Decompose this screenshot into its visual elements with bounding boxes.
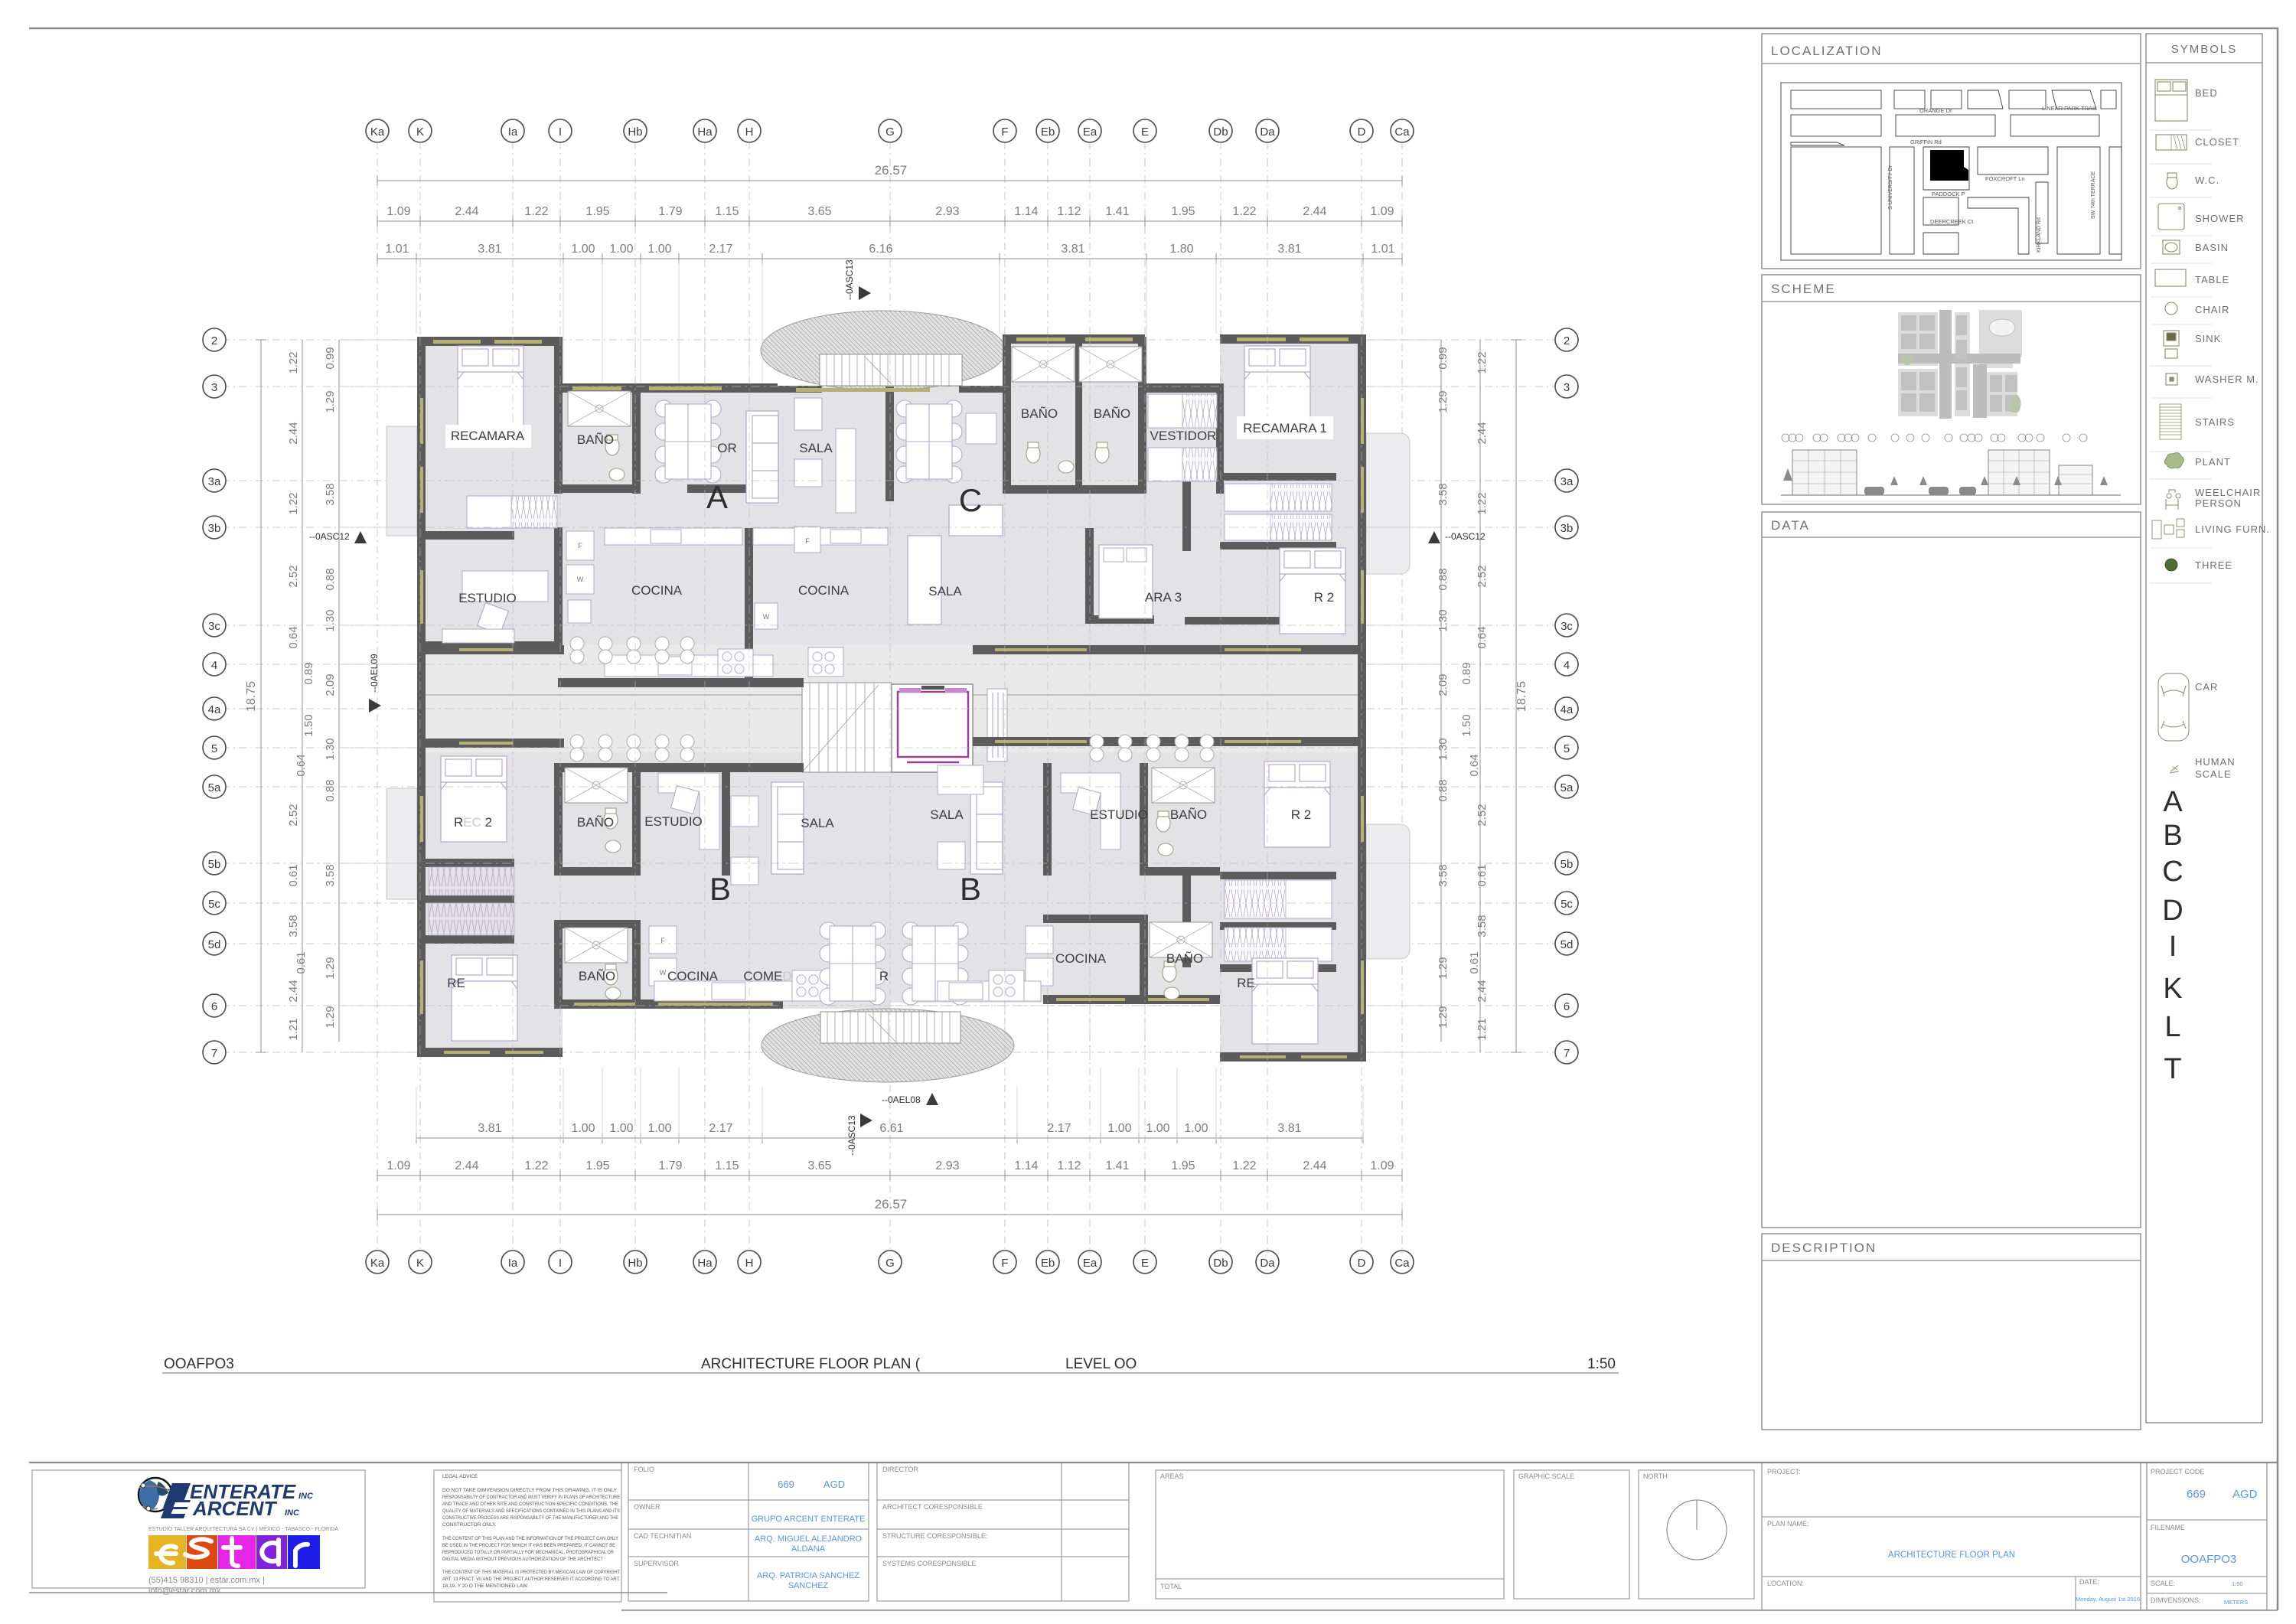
svg-text:3.81: 3.81 [1061, 243, 1084, 256]
svg-text:D: D [2162, 895, 2183, 927]
svg-text:5c: 5c [208, 898, 220, 911]
svg-text:2.44: 2.44 [1303, 205, 1326, 218]
svg-text:1.00: 1.00 [1146, 1122, 1169, 1135]
svg-text:0.64: 0.64 [1468, 754, 1481, 776]
svg-text:BAÑO: BAÑO [577, 432, 614, 447]
svg-text:3a: 3a [208, 475, 221, 488]
svg-text:W.C.: W.C. [2195, 174, 2219, 186]
svg-text:1.22: 1.22 [1476, 351, 1489, 373]
svg-text:KIRKLAND Rd: KIRKLAND Rd [2037, 217, 2042, 253]
svg-text:ESTUDIO: ESTUDIO [458, 591, 517, 605]
svg-text:1.09: 1.09 [386, 205, 410, 218]
svg-text:TOTAL: TOTAL [1160, 1583, 1182, 1590]
svg-text:AREAS: AREAS [1160, 1472, 1184, 1480]
svg-text:1.29: 1.29 [324, 1006, 337, 1028]
svg-text:Db: Db [1213, 1257, 1228, 1270]
svg-text:RECAMARA 1: RECAMARA 1 [1243, 421, 1327, 435]
svg-text:BAÑO: BAÑO [1166, 951, 1203, 966]
svg-text:1.00: 1.00 [647, 243, 671, 256]
svg-text:I: I [559, 1257, 562, 1270]
svg-text:1.15: 1.15 [715, 1159, 739, 1172]
svg-text:3.65: 3.65 [807, 205, 831, 218]
svg-text:ARA 3: ARA 3 [1145, 590, 1182, 605]
svg-text:0.99: 0.99 [1437, 347, 1450, 369]
svg-text:THE CONTENT OF THIS PLAN AND T: THE CONTENT OF THIS PLAN AND THE INFORMA… [442, 1536, 619, 1541]
svg-text:0.89: 0.89 [1460, 662, 1473, 684]
svg-text:Da: Da [1260, 1257, 1275, 1270]
svg-text:3.81: 3.81 [1277, 1122, 1301, 1135]
svg-text:LOCATION:: LOCATION: [1767, 1580, 1804, 1587]
svg-text:1.29: 1.29 [1437, 957, 1450, 979]
svg-text:DIRECTOR: DIRECTOR [882, 1466, 918, 1473]
svg-text:CHAIR: CHAIR [2195, 304, 2229, 315]
svg-text:COCINA: COCINA [631, 583, 683, 598]
svg-text:4: 4 [1564, 659, 1570, 672]
svg-text:2.44: 2.44 [287, 422, 300, 444]
svg-text:CONSTRUCTOR ONLY.: CONSTRUCTOR ONLY. [442, 1522, 497, 1528]
svg-text:DATE:: DATE: [2079, 1578, 2099, 1586]
svg-text:1.30: 1.30 [324, 609, 337, 631]
svg-text:B: B [709, 871, 731, 907]
svg-text:SYSTEMS CORESPONSIBLE: SYSTEMS CORESPONSIBLE [882, 1560, 977, 1567]
svg-text:0.61: 0.61 [287, 864, 300, 886]
svg-text:0.88: 0.88 [1437, 779, 1450, 801]
svg-text:B: B [960, 871, 981, 907]
svg-text:1.21: 1.21 [1476, 1018, 1489, 1040]
svg-text:3a: 3a [1561, 475, 1574, 488]
svg-text:TABLE: TABLE [2195, 274, 2229, 285]
svg-text:1:50: 1:50 [2232, 1580, 2243, 1587]
svg-text:SALA: SALA [928, 584, 962, 598]
svg-text:REPRODUCED TOTALLY OR PARTIALL: REPRODUCED TOTALLY OR PARTIALLY FOR MECH… [442, 1550, 614, 1555]
svg-text:6.61: 6.61 [879, 1122, 903, 1135]
svg-text:W: W [763, 613, 770, 621]
svg-text:2.44: 2.44 [455, 1159, 478, 1172]
svg-text:E: E [1141, 126, 1149, 139]
svg-text:1.50: 1.50 [1460, 714, 1473, 736]
svg-text:PADDOCK P: PADDOCK P [1932, 191, 1965, 197]
svg-text:WEELCHAIR: WEELCHAIR [2195, 487, 2261, 498]
svg-text:GRAPHIC SCALE: GRAPHIC SCALE [1518, 1472, 1574, 1480]
svg-text:SALA: SALA [799, 441, 833, 455]
svg-text:H: H [745, 1257, 754, 1270]
svg-text:Eb: Eb [1041, 126, 1055, 139]
svg-text:I: I [559, 126, 562, 139]
svg-text:D: D [1358, 126, 1366, 139]
svg-text:Ia: Ia [508, 1257, 518, 1270]
svg-text:0.61: 0.61 [1468, 951, 1481, 973]
svg-text:BAÑO: BAÑO [1170, 807, 1207, 822]
svg-text:0.64: 0.64 [295, 754, 308, 776]
svg-text:PLANT: PLANT [2195, 456, 2231, 468]
svg-text:INC: INC [298, 1492, 314, 1501]
svg-text:BAÑO: BAÑO [579, 969, 615, 983]
svg-text:0.88: 0.88 [1437, 568, 1450, 590]
svg-text:REC 2: REC 2 [454, 815, 492, 830]
svg-text:5b: 5b [1561, 858, 1574, 871]
svg-text:OWNER: OWNER [634, 1503, 660, 1511]
svg-text:Ca: Ca [1394, 1257, 1410, 1270]
svg-text:5d: 5d [1561, 938, 1574, 951]
svg-text:6: 6 [1564, 1000, 1570, 1013]
svg-text:FOXCROFT Ln: FOXCROFT Ln [1985, 175, 2025, 182]
svg-text:Ea: Ea [1083, 126, 1097, 139]
svg-text:3b: 3b [208, 522, 221, 535]
svg-text:(55)415 98310 | estar.c: (55)415 98310 | estar.com.mx | [148, 1576, 265, 1585]
svg-text:1.30: 1.30 [1437, 738, 1450, 760]
svg-text:SHOWER: SHOWER [2195, 213, 2245, 224]
svg-text:A: A [2163, 786, 2183, 818]
svg-text:OOAFPO3: OOAFPO3 [164, 1356, 234, 1372]
svg-text:1.00: 1.00 [647, 1122, 671, 1135]
svg-text:1.95: 1.95 [585, 1159, 609, 1172]
svg-text:RE: RE [1237, 976, 1255, 990]
svg-text:DATA: DATA [1771, 518, 1810, 533]
svg-text:1.00: 1.00 [571, 1122, 595, 1135]
svg-text:2.44: 2.44 [1476, 422, 1489, 444]
svg-text:SUPERVISOR: SUPERVISOR [634, 1560, 679, 1567]
svg-text:2: 2 [211, 334, 217, 347]
svg-text:NORTH: NORTH [1643, 1472, 1668, 1480]
svg-text:LEGAL ADVICE: LEGAL ADVICE [442, 1474, 478, 1479]
svg-text:18.75: 18.75 [245, 681, 258, 712]
svg-text:L: L [2164, 1011, 2180, 1043]
svg-text:WASHER M.: WASHER M. [2195, 373, 2259, 385]
svg-text:1.22: 1.22 [1232, 205, 1256, 218]
svg-text:2.09: 2.09 [1437, 673, 1450, 696]
svg-text:1.30: 1.30 [324, 738, 337, 760]
svg-text:LINEAR PARK TRAIL: LINEAR PARK TRAIL [2042, 105, 2097, 112]
svg-text:1:50: 1:50 [1587, 1356, 1616, 1372]
svg-text:DEERCREEK Ct: DEERCREEK Ct [1930, 218, 1974, 225]
svg-text:3.81: 3.81 [1277, 243, 1301, 256]
svg-text:ARCHITECT CORESPONSIBLE: ARCHITECT CORESPONSIBLE [882, 1503, 983, 1511]
svg-text:F: F [578, 542, 582, 549]
svg-text:A: A [706, 479, 728, 515]
svg-text:3: 3 [1564, 381, 1570, 394]
svg-text:METERS: METERS [2224, 1599, 2248, 1606]
svg-text:DESCRIPTION: DESCRIPTION [1771, 1241, 1877, 1255]
svg-text:5: 5 [1564, 742, 1570, 755]
svg-text:HUMAN: HUMAN [2195, 756, 2236, 768]
svg-text:--0ASC13: --0ASC13 [846, 1115, 857, 1156]
svg-text:1.09: 1.09 [386, 1159, 410, 1172]
svg-text:1.14: 1.14 [1014, 1159, 1038, 1172]
svg-text:Ia: Ia [508, 126, 518, 139]
svg-text:0.61: 0.61 [295, 951, 308, 973]
svg-text:ART. 13 FRACT. VII AND THE PRO: ART. 13 FRACT. VII AND THE PROJECT AUTHO… [442, 1577, 620, 1582]
svg-text:SCALE:: SCALE: [2151, 1580, 2175, 1587]
svg-text:ESTUDIO: ESTUDIO [644, 814, 703, 829]
svg-text:2.44: 2.44 [1303, 1159, 1326, 1172]
svg-text:1.22: 1.22 [287, 492, 300, 514]
svg-text:1.22: 1.22 [1476, 492, 1489, 514]
svg-text:1.95: 1.95 [585, 205, 609, 218]
svg-text:2.93: 2.93 [935, 1159, 959, 1172]
svg-text:K: K [416, 1257, 424, 1270]
svg-text:1.14: 1.14 [1014, 205, 1038, 218]
svg-text:G: G [885, 1257, 895, 1270]
svg-text:ARQ. PATRICIA SANCHEZ: ARQ. PATRICIA SANCHEZ [757, 1571, 859, 1580]
svg-text:3.58: 3.58 [1437, 864, 1450, 886]
svg-text:26.57: 26.57 [875, 163, 908, 178]
svg-text:R 2: R 2 [1314, 590, 1334, 605]
svg-text:0.99: 0.99 [324, 347, 337, 369]
svg-text:BE USED IN THE PROJECT FOR WHI: BE USED IN THE PROJECT FOR WHICH IT HAS … [442, 1543, 616, 1548]
svg-text:1.12: 1.12 [1057, 205, 1081, 218]
svg-text:info@estar.com.mx: info@estar.com.mx [148, 1586, 221, 1596]
svg-text:1.95: 1.95 [1171, 1159, 1195, 1172]
svg-text:2.44: 2.44 [1476, 980, 1489, 1002]
svg-text:3c: 3c [1561, 620, 1573, 633]
svg-text:1.22: 1.22 [1232, 1159, 1256, 1172]
svg-text:SANCHEZ: SANCHEZ [788, 1581, 829, 1590]
svg-text:1.41: 1.41 [1105, 1159, 1129, 1172]
svg-text:LOCALIZATION: LOCALIZATION [1771, 44, 1883, 58]
svg-text:ESTUDIO: ESTUDIO [1090, 807, 1148, 822]
svg-text:1.00: 1.00 [1107, 1122, 1131, 1135]
svg-text:1.22: 1.22 [524, 205, 548, 218]
svg-text:1.79: 1.79 [658, 1159, 682, 1172]
svg-text:1.95: 1.95 [1171, 205, 1195, 218]
svg-text:R 2: R 2 [1291, 807, 1311, 822]
svg-text:OR: OR [717, 441, 737, 455]
svg-text:5b: 5b [208, 858, 221, 871]
svg-text:INC: INC [285, 1508, 300, 1518]
svg-text:3b: 3b [1561, 522, 1574, 535]
svg-text:3.81: 3.81 [478, 243, 501, 256]
svg-text:1.79: 1.79 [658, 205, 682, 218]
svg-text:SALA: SALA [801, 816, 834, 830]
svg-text:0.89: 0.89 [302, 662, 315, 684]
svg-text:5a: 5a [208, 781, 221, 794]
svg-text:1.29: 1.29 [324, 957, 337, 979]
svg-text:3.65: 3.65 [807, 1159, 831, 1172]
svg-text:--0AEL09: --0AEL09 [369, 654, 380, 693]
svg-text:4a: 4a [208, 703, 221, 716]
svg-text:0.88: 0.88 [324, 779, 337, 801]
svg-text:3.58: 3.58 [287, 915, 300, 937]
svg-text:3c: 3c [208, 620, 220, 633]
svg-text:0.64: 0.64 [1476, 626, 1489, 648]
svg-text:5c: 5c [1561, 898, 1573, 911]
svg-text:LEVEL OO: LEVEL OO [1065, 1356, 1137, 1372]
svg-text:K: K [416, 126, 424, 139]
svg-text:AGD: AGD [2232, 1488, 2258, 1501]
svg-text:669: 669 [2187, 1488, 2206, 1501]
svg-text:1.12: 1.12 [1057, 1159, 1081, 1172]
svg-text:F: F [1001, 126, 1008, 139]
svg-text:Eb: Eb [1041, 1257, 1055, 1270]
svg-text:0.88: 0.88 [324, 568, 337, 590]
svg-text:GRUPO ARCENT ENTERATE: GRUPO ARCENT ENTERATE [752, 1515, 866, 1524]
svg-text:I: I [2169, 931, 2177, 963]
svg-text:SALA: SALA [930, 807, 964, 822]
svg-text:K: K [2163, 973, 2182, 1005]
svg-text:--0AEL08: --0AEL08 [882, 1094, 921, 1105]
svg-text:PERSON: PERSON [2195, 497, 2242, 509]
svg-text:FOLIO: FOLIO [634, 1466, 654, 1473]
svg-text:2.52: 2.52 [1476, 804, 1489, 826]
svg-text:1.22: 1.22 [287, 351, 300, 373]
svg-text:OOAFPO3: OOAFPO3 [2181, 1553, 2237, 1566]
svg-text:ORANGE Dr: ORANGE Dr [1919, 107, 1952, 114]
svg-text:STAIRS: STAIRS [2195, 416, 2235, 428]
svg-text:CAR: CAR [2195, 681, 2218, 693]
svg-text:ARQ. MIGUEL ALEJANDRO: ARQ. MIGUEL ALEJANDRO [755, 1534, 863, 1544]
svg-text:Ka: Ka [370, 1257, 385, 1270]
svg-text:T: T [2164, 1053, 2181, 1085]
svg-text:BAÑO: BAÑO [1021, 406, 1058, 421]
svg-text:GRiFFiN Rd: GRiFFiN Rd [1910, 139, 1942, 145]
svg-text:DIMVENSIONS:: DIMVENSIONS: [2151, 1596, 2201, 1604]
svg-text:6.16: 6.16 [869, 243, 892, 256]
svg-text:THE CONTENT OF THIS MATERIAL I: THE CONTENT OF THIS MATERIAL IS PROTECTE… [442, 1570, 620, 1575]
svg-text:2.44: 2.44 [287, 980, 300, 1002]
svg-text:C: C [2162, 856, 2183, 888]
svg-text:1.09: 1.09 [1370, 1159, 1394, 1172]
svg-text:RESPONSABILTY OF CONTRACTOR AN: RESPONSABILTY OF CONTRACTOR AND MUST VER… [442, 1495, 621, 1500]
svg-text:26.57: 26.57 [875, 1197, 908, 1211]
svg-text:PROJECT CODE: PROJECT CODE [2151, 1468, 2204, 1476]
svg-text:3.81: 3.81 [478, 1122, 501, 1135]
svg-text:Hb: Hb [628, 126, 642, 139]
svg-text:1.80: 1.80 [1169, 243, 1193, 256]
svg-text:5: 5 [211, 742, 217, 755]
svg-text:1.15: 1.15 [715, 205, 739, 218]
svg-text:1.29: 1.29 [1437, 1006, 1450, 1028]
svg-text:Da: Da [1260, 126, 1275, 139]
svg-text:2.17: 2.17 [709, 243, 732, 256]
svg-text:BED: BED [2195, 87, 2218, 99]
svg-text:CONSTRUCTIVE PROCESS ARE RISPO: CONSTRUCTIVE PROCESS ARE RISPONSABILTY O… [442, 1515, 619, 1521]
svg-text:1.41: 1.41 [1105, 205, 1129, 218]
svg-text:F: F [660, 937, 665, 944]
svg-text:3.58: 3.58 [324, 483, 337, 505]
svg-text:DIGITAL MEDIA WITHOUT PREVIOUS: DIGITAL MEDIA WITHOUT PREVIOUS AUTHORIZA… [442, 1557, 603, 1562]
svg-text:W: W [660, 969, 667, 977]
svg-text:PROJECT:: PROJECT: [1767, 1468, 1801, 1476]
svg-text:THREE: THREE [2195, 559, 2232, 571]
svg-text:Db: Db [1213, 126, 1228, 139]
svg-text:--0ASC12: --0ASC12 [1445, 531, 1486, 542]
svg-text:F: F [1001, 1257, 1008, 1270]
svg-text:AND TRACE AND OTHER SITE AND C: AND TRACE AND OTHER SITE AND CONSTRUCTIO… [442, 1502, 619, 1507]
svg-text:7: 7 [1564, 1047, 1570, 1060]
svg-text:6: 6 [211, 1000, 217, 1013]
svg-text:BASIN: BASIN [2195, 242, 2229, 253]
svg-text:QUALITY OF MATERIALS AND SPECI: QUALITY OF MATERIALS AND SPECIFICATIONS … [442, 1508, 621, 1514]
svg-text:G: G [885, 126, 895, 139]
svg-text:2.52: 2.52 [287, 565, 300, 587]
svg-text:1.29: 1.29 [1437, 390, 1450, 413]
svg-text:CLOSET: CLOSET [2195, 136, 2239, 148]
svg-text:ESTUDIO TALLER ARQUITECTURA: ESTUDIO TALLER ARQUITECTURA SA CV | MÉXI… [148, 1525, 338, 1532]
svg-text:C: C [959, 482, 982, 518]
svg-text:SYMBOLS: SYMBOLS [2171, 43, 2238, 56]
svg-text:18.75: 18.75 [1515, 681, 1528, 712]
svg-text:DO NOT TAKE DIMVENSION DIRECTL: DO NOT TAKE DIMVENSION DIRECTLY FROM THI… [442, 1488, 618, 1493]
svg-text:2.09: 2.09 [324, 673, 337, 696]
svg-text:1.22: 1.22 [524, 1159, 548, 1172]
svg-text:ALDANA: ALDANA [791, 1544, 826, 1554]
svg-text:Ha: Ha [697, 1257, 713, 1270]
svg-text:COCINA: COCINA [667, 969, 719, 983]
svg-text:2.44: 2.44 [455, 205, 478, 218]
svg-text:4a: 4a [1561, 703, 1574, 716]
svg-text:0.64: 0.64 [287, 626, 300, 648]
svg-text:H: H [745, 126, 754, 139]
svg-text:1.01: 1.01 [1371, 243, 1394, 256]
svg-text:5d: 5d [208, 938, 221, 951]
svg-text:D: D [1358, 1257, 1366, 1270]
svg-text:RECAMARA: RECAMARA [451, 429, 525, 443]
svg-text:Ea: Ea [1083, 1257, 1097, 1270]
svg-text:COCINA: COCINA [798, 583, 850, 598]
svg-text:S UNIVERSITY Dr: S UNIVERSITY Dr [1888, 165, 1893, 210]
svg-text:1.09: 1.09 [1370, 205, 1394, 218]
svg-text:1.00: 1.00 [609, 1122, 633, 1135]
svg-text:4: 4 [211, 659, 217, 672]
svg-text:0.61: 0.61 [1476, 864, 1489, 886]
svg-text:1.29: 1.29 [324, 390, 337, 413]
svg-text:3.58: 3.58 [324, 864, 337, 886]
svg-text:W: W [577, 576, 584, 583]
svg-text:1.00: 1.00 [1184, 1122, 1208, 1135]
svg-text:FILENAME: FILENAME [2151, 1524, 2185, 1531]
svg-text:SINK: SINK [2195, 333, 2221, 344]
svg-text:R: R [879, 969, 889, 983]
svg-text:SCALE: SCALE [2195, 768, 2232, 780]
svg-text:2.52: 2.52 [1476, 565, 1489, 587]
svg-text:COMED: COMED [743, 969, 791, 983]
svg-text:--0ASC13: --0ASC13 [844, 259, 855, 300]
svg-text:669: 669 [778, 1479, 794, 1490]
svg-text:1.50: 1.50 [302, 714, 315, 736]
svg-text:3: 3 [211, 381, 217, 394]
svg-text:1.21: 1.21 [287, 1018, 300, 1040]
svg-text:Ca: Ca [1394, 126, 1410, 139]
svg-text:ARCENT: ARCENT [192, 1497, 277, 1520]
svg-text:PLAN NAME:: PLAN NAME: [1767, 1520, 1809, 1528]
svg-text:1.01: 1.01 [385, 243, 409, 256]
svg-text:F: F [805, 537, 810, 545]
svg-text:RE: RE [447, 976, 465, 990]
svg-text:3.58: 3.58 [1476, 915, 1489, 937]
svg-text:18,19, Y 20 O THE MENTIONED LA: 18,19, Y 20 O THE MENTIONED LAW. [442, 1583, 529, 1589]
svg-text:SW 74th TERRACE: SW 74th TERRACE [2091, 171, 2096, 219]
svg-text:BAÑO: BAÑO [577, 815, 614, 830]
svg-text:2: 2 [1564, 334, 1570, 347]
svg-text:VESTIDOR: VESTIDOR [1150, 429, 1217, 443]
svg-text:1.00: 1.00 [571, 243, 595, 256]
svg-text:BAÑO: BAÑO [1094, 406, 1130, 421]
svg-text:1.30: 1.30 [1437, 609, 1450, 631]
svg-text:AGD: AGD [823, 1479, 845, 1490]
svg-text:COCINA: COCINA [1055, 951, 1107, 966]
svg-text:E: E [1141, 1257, 1149, 1270]
svg-text:1.00: 1.00 [609, 243, 633, 256]
svg-text:SCHEME: SCHEME [1771, 282, 1836, 296]
svg-text:LIVING FURN.: LIVING FURN. [2195, 523, 2270, 535]
svg-text:2.17: 2.17 [709, 1122, 732, 1135]
svg-text:2.17: 2.17 [1047, 1122, 1071, 1135]
svg-text:B: B [2163, 820, 2182, 852]
svg-text:Hb: Hb [628, 1257, 642, 1270]
svg-text:--0ASC12: --0ASC12 [309, 531, 350, 542]
svg-text:2.52: 2.52 [287, 804, 300, 826]
svg-text:7: 7 [211, 1047, 217, 1060]
